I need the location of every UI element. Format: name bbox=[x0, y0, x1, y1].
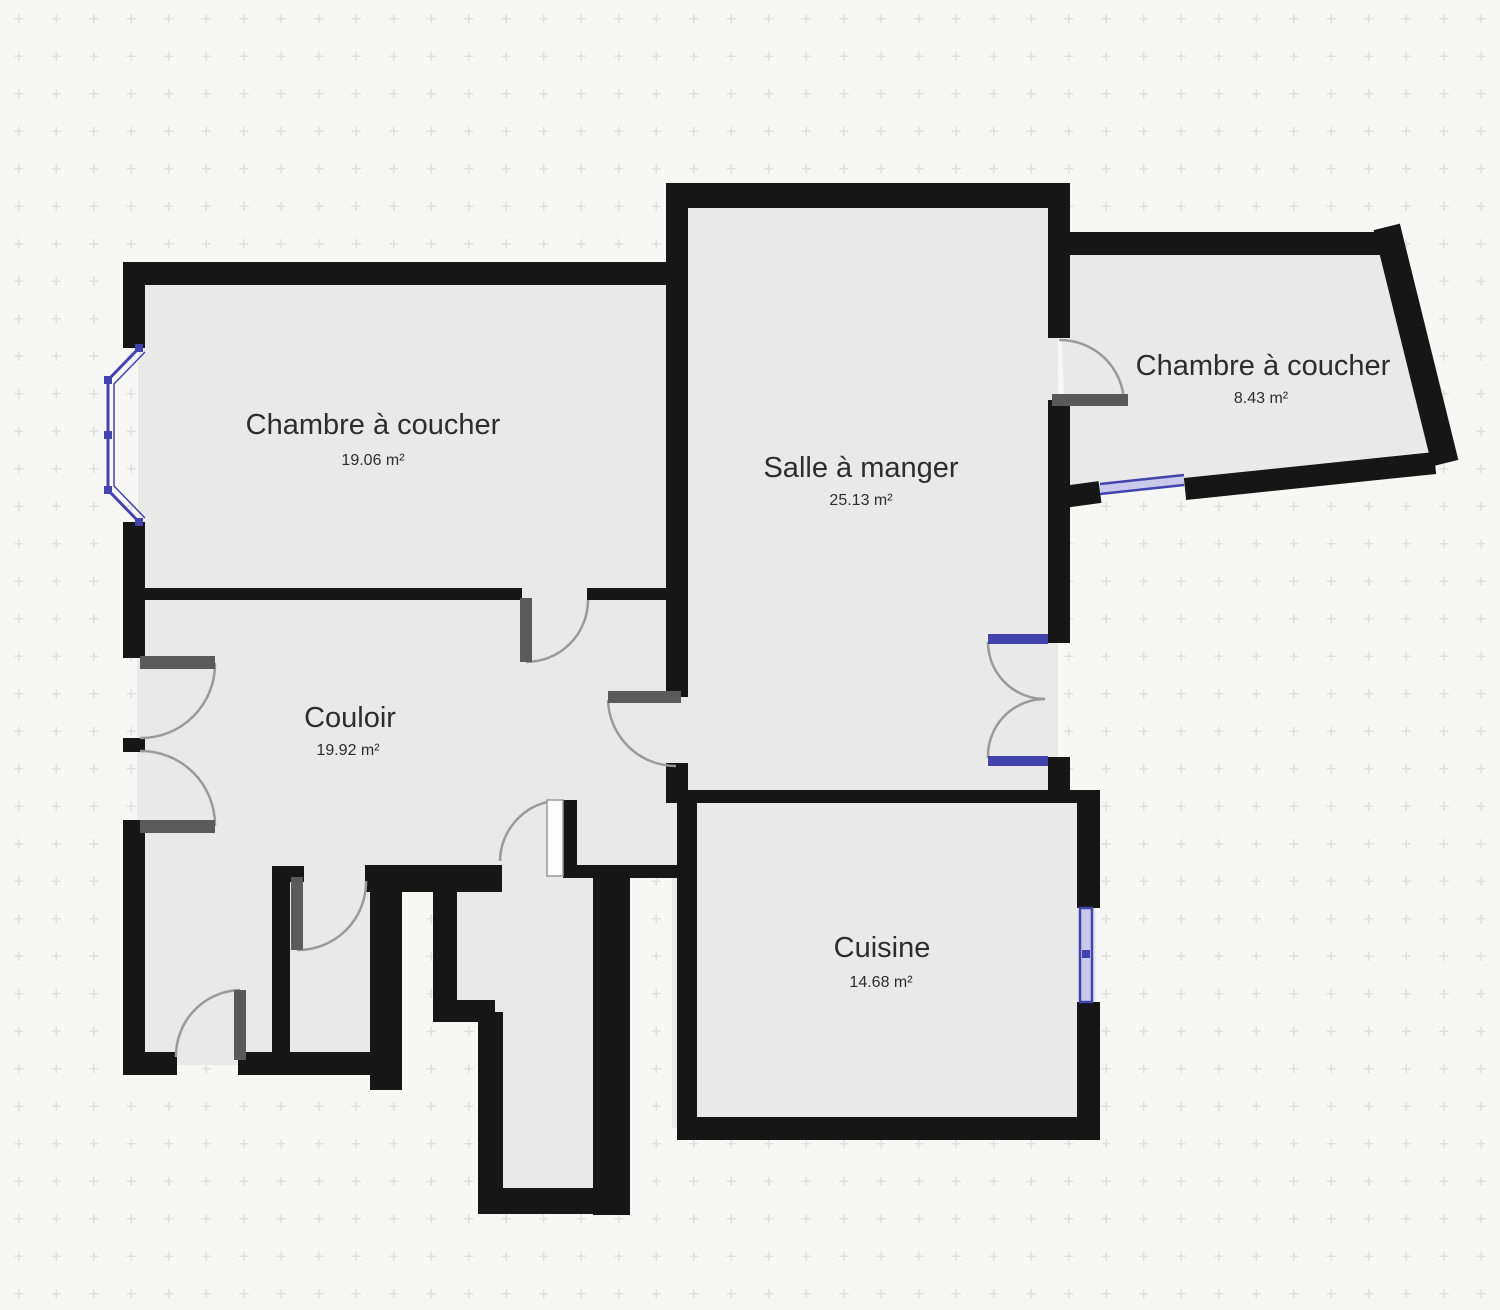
french-door-top[interactable] bbox=[988, 634, 1048, 644]
wall-segment bbox=[563, 865, 690, 878]
door-bedroom-tr[interactable] bbox=[1052, 394, 1128, 406]
room-label-bedroom-top-right: Chambre à coucher bbox=[1136, 350, 1391, 382]
wall-segment bbox=[478, 1012, 503, 1192]
room-floor-hallway-left-arm[interactable] bbox=[137, 860, 293, 1065]
window-node bbox=[1082, 950, 1090, 958]
wall-segment bbox=[123, 820, 145, 1075]
wall-segment bbox=[1048, 232, 1398, 255]
door-corridor[interactable] bbox=[547, 800, 563, 876]
room-label-kitchen: Cuisine bbox=[834, 932, 931, 964]
room-label-dining-room: Salle à manger bbox=[763, 452, 958, 484]
wall-segment bbox=[677, 803, 697, 1117]
wall-segment bbox=[593, 877, 630, 1215]
wall-segment bbox=[123, 262, 145, 348]
room-label-hallway: Couloir bbox=[304, 702, 396, 734]
wall-segment bbox=[123, 1052, 177, 1075]
room-label-bedroom-top-left: Chambre à coucher bbox=[246, 409, 501, 441]
wall-segment bbox=[272, 866, 290, 1056]
wall-segment bbox=[145, 588, 522, 600]
window-node bbox=[135, 518, 143, 526]
window-kitchen[interactable] bbox=[1080, 908, 1092, 1002]
wall-segment bbox=[1077, 790, 1100, 908]
wall-segment bbox=[1048, 400, 1070, 643]
room-area-hallway: 19.92 m² bbox=[316, 742, 380, 759]
wall-segment bbox=[677, 1117, 1100, 1140]
door-bedroom-tl[interactable] bbox=[520, 598, 532, 662]
door-hallway-dining[interactable] bbox=[608, 691, 681, 703]
floor-plan-canvas: Chambre à coucher 19.06 m² Salle à mange… bbox=[0, 0, 1500, 1310]
window-node bbox=[135, 344, 143, 352]
wall-segment bbox=[478, 1188, 606, 1214]
door-bottom-entrance[interactable] bbox=[234, 990, 246, 1060]
window-node bbox=[104, 376, 112, 384]
door-storage[interactable] bbox=[291, 877, 303, 950]
room-area-dining-room: 25.13 m² bbox=[829, 492, 893, 509]
room-area-kitchen: 14.68 m² bbox=[849, 974, 913, 991]
wall-segment bbox=[666, 183, 688, 697]
wall-segment bbox=[1056, 492, 1100, 498]
wall-segment bbox=[666, 183, 1070, 208]
window-node bbox=[104, 431, 112, 439]
room-area-bedroom-top-left: 19.06 m² bbox=[341, 452, 405, 469]
window-node bbox=[104, 486, 112, 494]
room-floor-hallway[interactable] bbox=[137, 596, 688, 877]
wall-segment bbox=[433, 880, 457, 1012]
wall-segment bbox=[123, 522, 145, 658]
door-entry-upper[interactable] bbox=[140, 656, 215, 669]
french-door-bottom[interactable] bbox=[988, 756, 1048, 766]
wall-segment bbox=[123, 262, 688, 285]
room-floor-corridor-lower[interactable] bbox=[487, 1000, 603, 1196]
floor-plan-page: Chambre à coucher 19.06 m² Salle à mange… bbox=[0, 0, 1500, 1310]
wall-segment bbox=[666, 790, 1100, 803]
room-floor-corridor-upper[interactable] bbox=[440, 872, 603, 1012]
room-area-bedroom-top-right: 8.43 m² bbox=[1234, 390, 1289, 407]
wall-segment bbox=[370, 865, 402, 1090]
door-entry-lower[interactable] bbox=[140, 820, 215, 833]
wall-segment bbox=[1048, 183, 1070, 338]
